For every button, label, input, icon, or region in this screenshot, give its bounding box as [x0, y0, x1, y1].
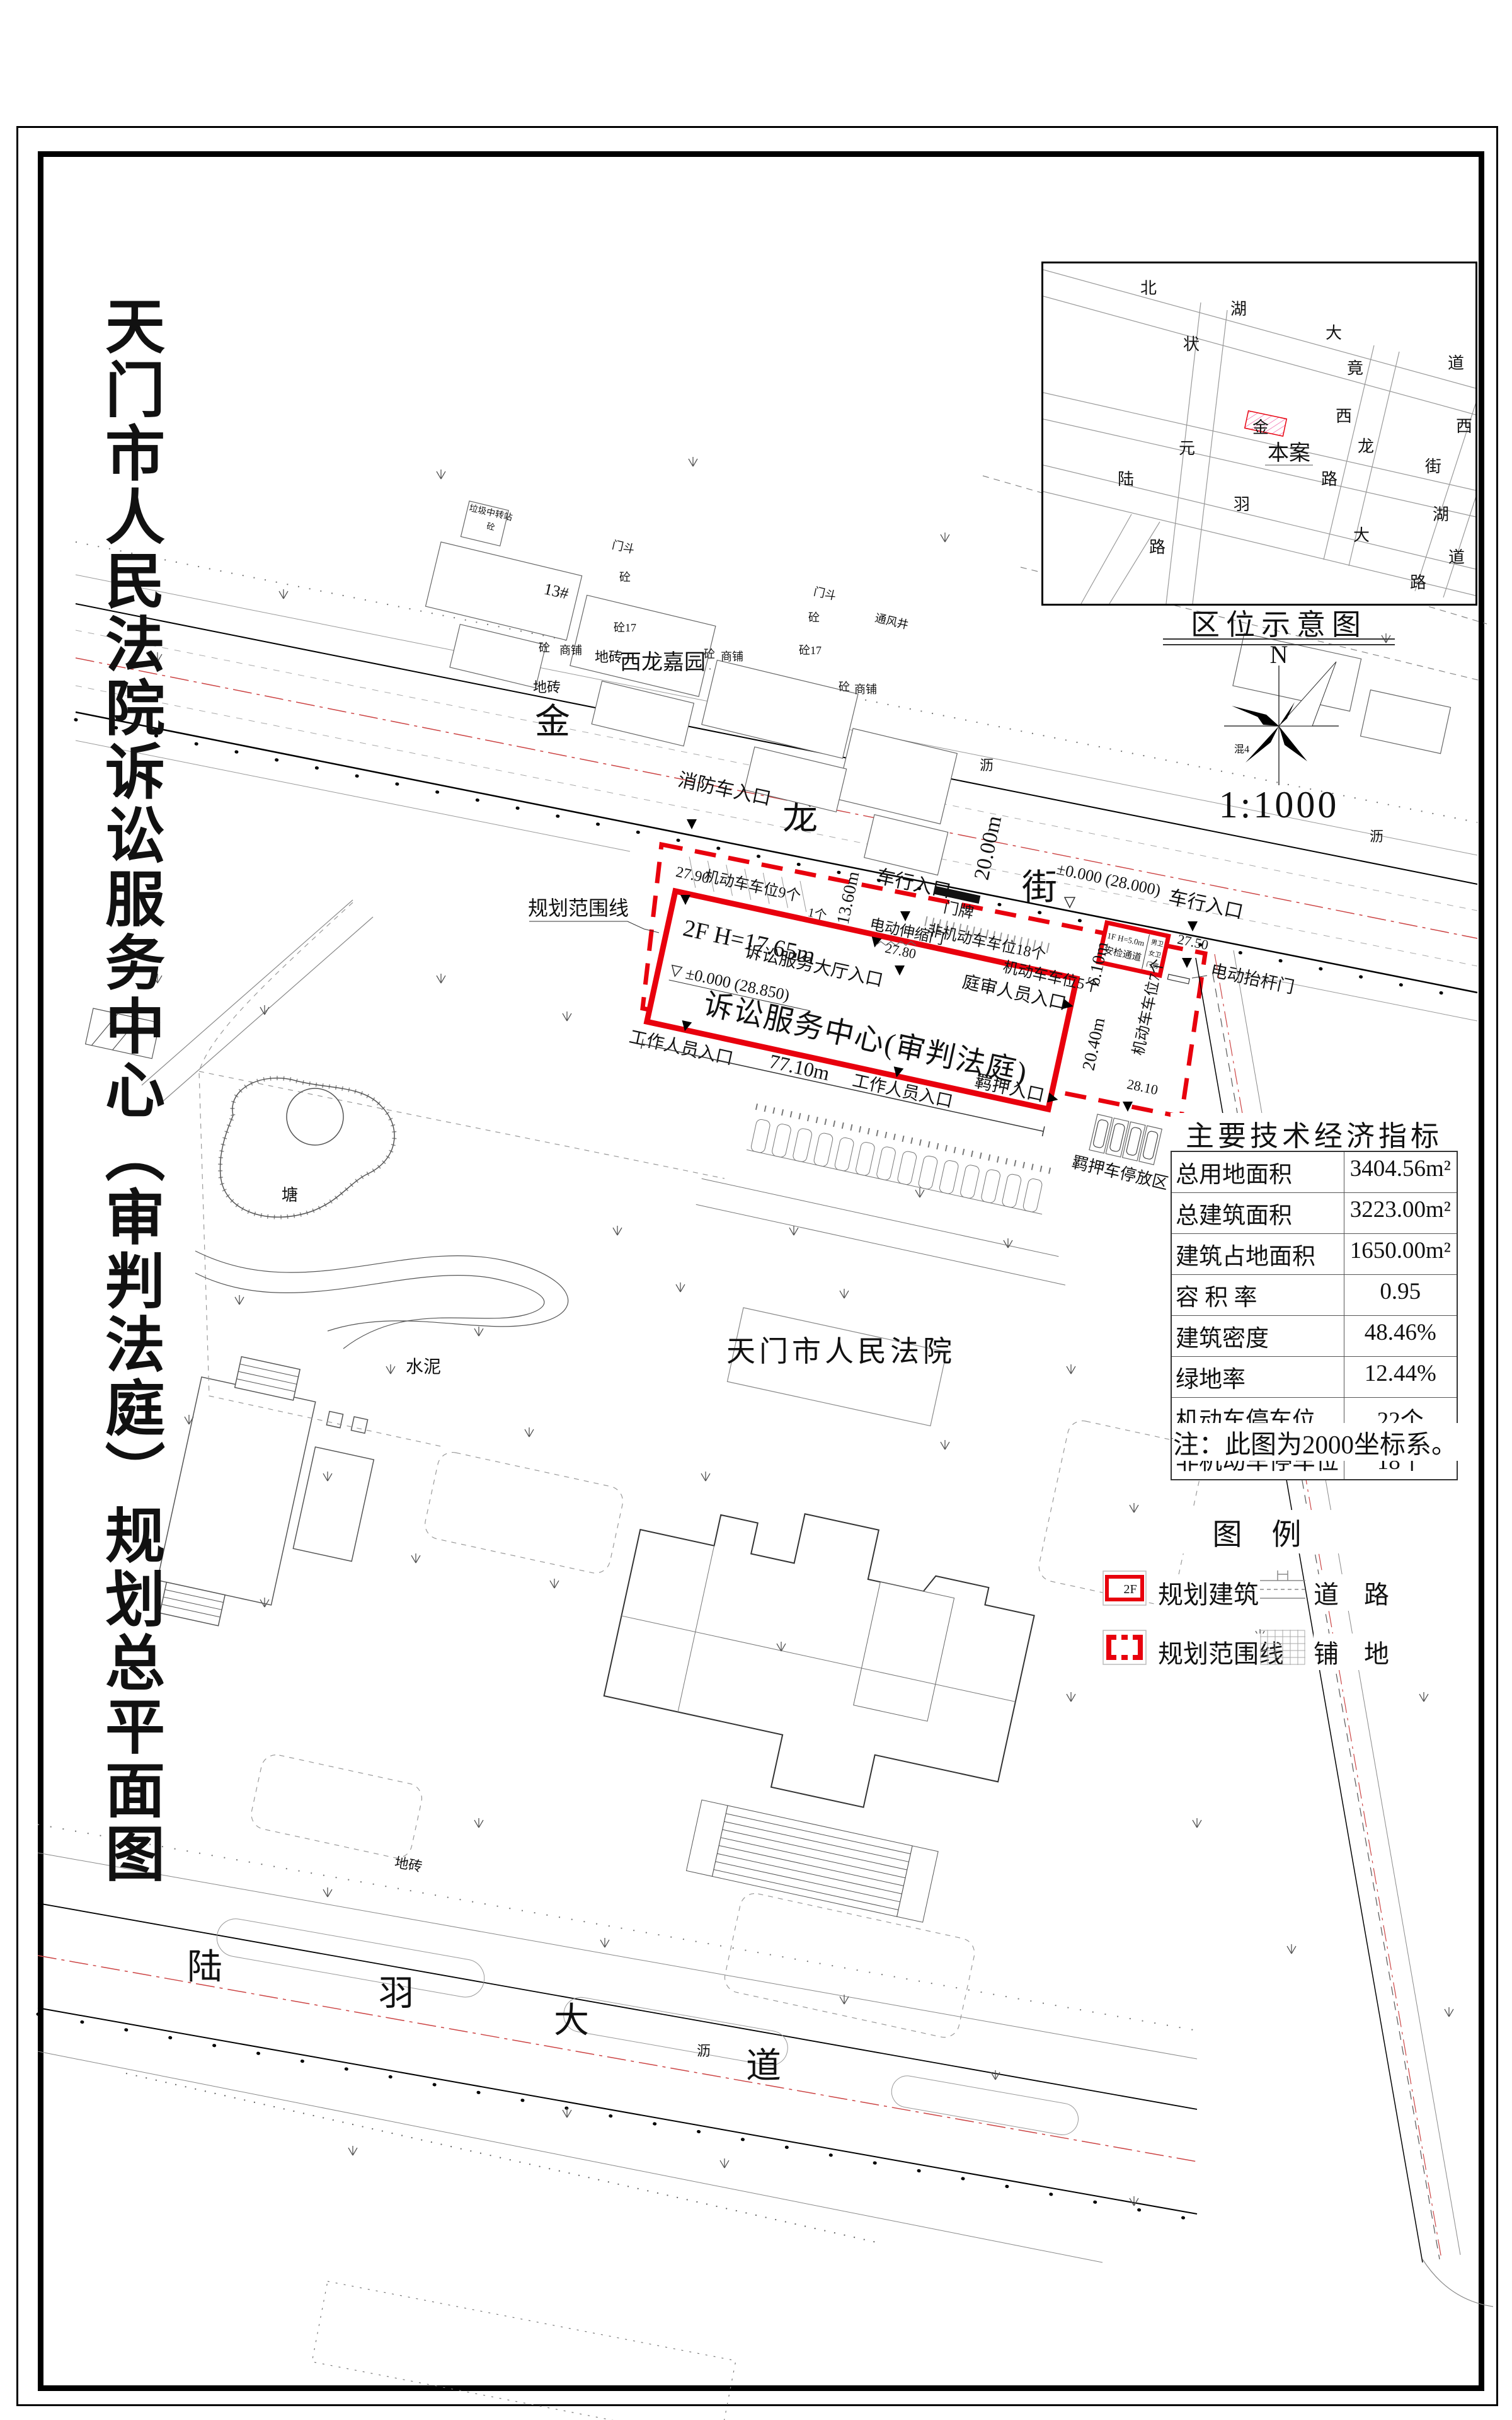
row-value: 1650.00m²: [1344, 1234, 1457, 1274]
street-name-char: 金: [535, 703, 570, 742]
compass-note: 混4: [1234, 744, 1249, 755]
row-value: 12.44%: [1344, 1357, 1457, 1397]
concrete-label: 砼: [839, 681, 850, 693]
street-width-dim: 20.00m: [970, 814, 1007, 882]
map-street-char: 状: [1183, 335, 1200, 354]
barrier-gate-symbol: [1167, 974, 1189, 984]
map-street-char: 街: [1425, 458, 1441, 476]
map-street-char: 北: [1140, 279, 1157, 297]
street-name-char: 道: [746, 2047, 781, 2086]
court-name-label: 天门市人民法院: [726, 1335, 956, 1368]
surface-label-asphalt: 沥: [980, 758, 994, 773]
table-row: 总建筑面积3223.00m²: [1172, 1192, 1457, 1233]
vehicle-entrance-arrow: [900, 911, 910, 921]
map-street-char: 龙: [1358, 437, 1374, 456]
table-row: 绿地率12.44%: [1172, 1356, 1457, 1397]
map-street-char: 西: [1456, 417, 1472, 435]
north-label: N: [1270, 644, 1288, 669]
surface-label-tile: 地砖: [393, 1854, 423, 1874]
plate-label: 门牌: [942, 899, 975, 921]
surface-label-tile: 地砖: [595, 649, 622, 665]
map-street-char: 大: [1353, 526, 1370, 544]
estate-name-label: 西龙嘉园: [620, 650, 706, 674]
table-row: 建筑占地面积1650.00m²: [1172, 1233, 1457, 1274]
level-zero-28000: ±0.000 (28.000): [1055, 860, 1162, 899]
row-label: 绿地率: [1172, 1357, 1344, 1397]
concrete-label: 砼: [619, 571, 631, 584]
table-row: 建筑密度48.46%: [1172, 1315, 1457, 1356]
map-street-char: 湖: [1230, 300, 1247, 318]
map-street-char: 路: [1410, 573, 1426, 592]
level-marker: [1123, 1102, 1133, 1112]
legend-symbol-planning-boundary: [1102, 1630, 1147, 1665]
map-street-char: 西: [1336, 407, 1352, 425]
dim-610: 6.10m: [1084, 940, 1113, 988]
row-label: 总建筑面积: [1172, 1193, 1344, 1233]
map-street-char: 道: [1448, 548, 1465, 567]
location-map: 本案 北 湖 大 道 状 元 路 竟 西 路 金 龙 街 西 湖 路 陆 羽 大…: [1041, 262, 1477, 606]
street-name-char: 街: [1022, 868, 1057, 907]
fire-entrance-arrow: [687, 819, 697, 829]
existing-court-building: [593, 1480, 1045, 1834]
south-parking-comb: [696, 1098, 1089, 1285]
concrete-label: 砼: [808, 611, 820, 624]
row-label: 建筑密度: [1172, 1316, 1344, 1356]
planning-boundary-label: 规划范围线: [528, 897, 629, 919]
level-marker: [1182, 958, 1192, 968]
pond-label: 塘: [282, 1186, 298, 1204]
site-label: 本案: [1268, 441, 1310, 465]
vent-shaft-label: 通风井: [874, 611, 910, 631]
location-map-scale: 1:1000: [1191, 783, 1367, 827]
shop-label: 商铺: [721, 650, 743, 663]
table-row: 总用地面积3404.56m²: [1172, 1152, 1457, 1192]
shop-label: 商铺: [559, 644, 582, 657]
coordinate-note: 注：此图为2000坐标系。: [1173, 1423, 1475, 1461]
row-label: 容 积 率: [1172, 1275, 1344, 1315]
surface-label-asphalt: 沥: [697, 2043, 711, 2059]
level-2810: 28.10: [1126, 1076, 1160, 1098]
legend-label-paving: 铺 地: [1314, 1633, 1389, 1670]
map-street-char: 路: [1149, 538, 1165, 556]
map-street-char: 元: [1179, 439, 1195, 458]
legend-label-planned-building: 规划建筑: [1158, 1574, 1259, 1611]
map-street-char: 羽: [1234, 495, 1250, 514]
legend-label-road: 道 路: [1314, 1574, 1389, 1611]
doorhood-label: 门斗: [813, 585, 838, 602]
street-name-char: 大: [554, 2002, 589, 2041]
west-buildings: [151, 1349, 389, 1651]
dim-2040: 20.40m: [1079, 1016, 1109, 1073]
doorhood-label: 门斗: [611, 538, 636, 556]
table-row: 容 积 率0.95: [1172, 1274, 1457, 1315]
location-map-title: 区位示意图: [1171, 602, 1387, 643]
vehicle-entrance-label: 车行入口: [1167, 887, 1245, 923]
street-name-char: 羽: [379, 1974, 414, 2014]
shop-label: 商铺: [854, 683, 877, 696]
vehicle-entrance-arrow: [1188, 921, 1198, 931]
surface-label-cement: 水泥: [406, 1357, 441, 1377]
map-street-char: 道: [1448, 354, 1464, 372]
row-label: 总用地面积: [1172, 1152, 1344, 1192]
detention-parking-stalls: [1089, 1114, 1162, 1165]
map-street-char: 大: [1326, 324, 1342, 342]
row-label: 建筑占地面积: [1172, 1234, 1344, 1274]
map-street-char: 金: [1252, 418, 1269, 437]
boundary-label-leader: [627, 921, 659, 933]
pond-area: [142, 900, 568, 1349]
legend-title: 图 例: [1169, 1510, 1345, 1553]
row-value: 0.95: [1344, 1275, 1457, 1315]
concrete17-label: 砼17: [799, 644, 822, 657]
legend-symbol-planned-building: 2F: [1102, 1570, 1147, 1606]
legend-2f-text: 2F: [1123, 1582, 1137, 1596]
street-name-char: 陆: [187, 1948, 222, 1987]
concrete-label: 砼: [539, 642, 550, 654]
map-street-char: 陆: [1118, 470, 1134, 488]
main-stairs: [686, 1800, 938, 1922]
level-2790: 27.90: [674, 864, 711, 887]
legend-symbol-paving: [1260, 1630, 1305, 1665]
map-street-char: 路: [1321, 470, 1337, 488]
level-marker-open: [1065, 897, 1075, 907]
luyu-avenue-lines: [38, 1824, 1197, 2420]
drawing-title: 天门市人民法院诉讼服务中心（审判法庭）规划总平面图: [74, 295, 185, 1915]
north-compass-icon: N 混4: [1213, 644, 1348, 788]
legend-symbol-road: [1260, 1570, 1305, 1606]
map-street-char: 湖: [1433, 505, 1449, 524]
row-value: 48.46%: [1344, 1316, 1457, 1356]
surface-label-asphalt: 沥: [1370, 829, 1383, 844]
concrete17-label: 砼17: [614, 621, 636, 634]
row-value: 3223.00m²: [1344, 1193, 1457, 1233]
map-street-char: 竟: [1347, 359, 1363, 377]
location-map-streets: [1043, 270, 1475, 604]
row-value: 3404.56m²: [1344, 1152, 1457, 1192]
surface-label-tile: 地砖: [533, 679, 561, 695]
indicators-title: 主要技术经济指标: [1171, 1113, 1458, 1154]
barrier-gate-label: 电动抬杆门: [1209, 961, 1296, 997]
